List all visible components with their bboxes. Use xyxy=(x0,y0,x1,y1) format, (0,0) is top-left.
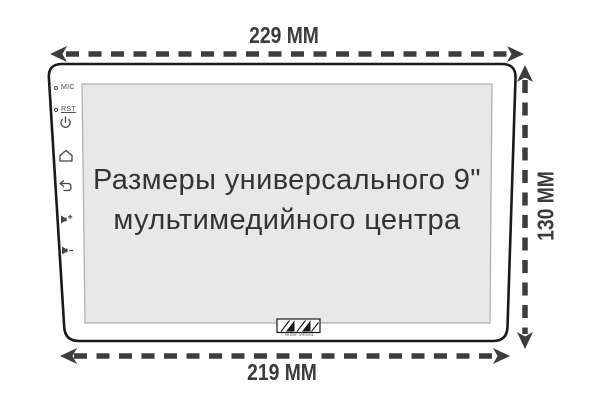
side-height-arrow xyxy=(517,65,533,349)
mic-label: MIC xyxy=(61,84,75,91)
screen-title-line1: Размеры универсального 9" xyxy=(82,160,492,200)
mic-hole-icon xyxy=(54,86,58,90)
bottom-width-label: 219 MM xyxy=(240,361,323,384)
screen-title: Размеры универсального 9" мультимедийног… xyxy=(82,160,492,240)
top-width-arrow xyxy=(50,46,524,62)
wide-media-logo xyxy=(277,319,320,333)
mic-pinhole: MIC xyxy=(54,84,75,91)
wide-media-logo-text: Wide Media xyxy=(275,333,323,338)
reset-label: RST xyxy=(61,106,76,113)
reset-pinhole: RST xyxy=(54,106,76,113)
top-width-label: 229 MM xyxy=(242,24,325,47)
side-height-label: 130 MM xyxy=(535,164,558,247)
screen-title-line2: мультимедийного центра xyxy=(82,200,492,240)
dimensions-diagram: 229 MM 219 MM 130 MM Размеры универсальн… xyxy=(0,0,600,411)
reset-hole-icon xyxy=(54,108,58,112)
